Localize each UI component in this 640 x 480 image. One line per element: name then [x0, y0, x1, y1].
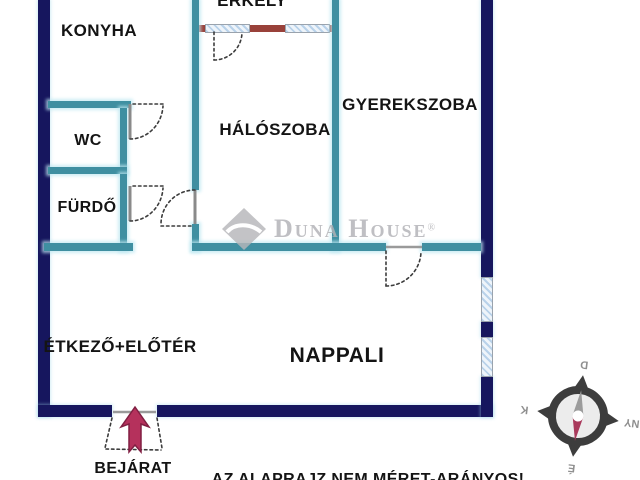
- entrance-door-right: [157, 418, 162, 448]
- watermark-registered-mark: ®: [428, 223, 436, 234]
- floor-plan: KONYHA ERKÉLY WC FÜRDŐ HÁLÓSZOBA GYEREKS…: [0, 0, 640, 480]
- compass-east-label: K: [520, 403, 529, 416]
- entrance-door-left: [105, 418, 112, 448]
- kitchen-door-arc: [130, 106, 163, 139]
- compass-north-label: É: [567, 461, 576, 474]
- bath-door-arc: [130, 188, 163, 221]
- compass-rose: É D K NY: [531, 369, 625, 463]
- entrance-arrow-icon: [121, 407, 149, 452]
- compass-west-label: NY: [624, 416, 640, 430]
- watermark-text: Duna House: [274, 214, 428, 243]
- bedroom-door-arc: [161, 190, 195, 224]
- balcony-door-arc: [214, 32, 242, 60]
- entrance-door-swing: [106, 449, 161, 450]
- watermark: Duna House®: [222, 208, 435, 250]
- compass-icon: [531, 369, 625, 463]
- compass-south-label: D: [580, 358, 589, 371]
- childroom-door-arc: [386, 251, 421, 286]
- dunahouse-logo-icon: [222, 208, 266, 250]
